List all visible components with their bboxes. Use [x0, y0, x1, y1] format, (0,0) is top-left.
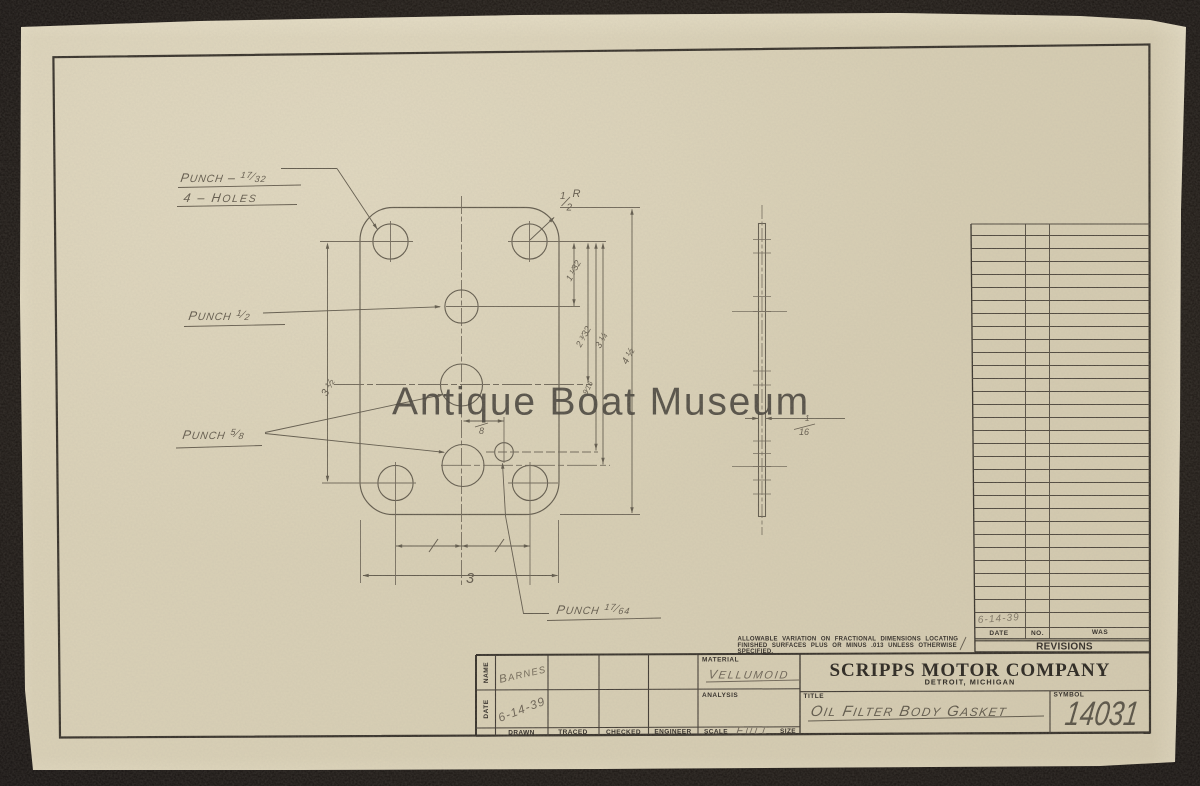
svg-text:Antique Boat Museum: Antique Boat Museum	[392, 381, 810, 424]
